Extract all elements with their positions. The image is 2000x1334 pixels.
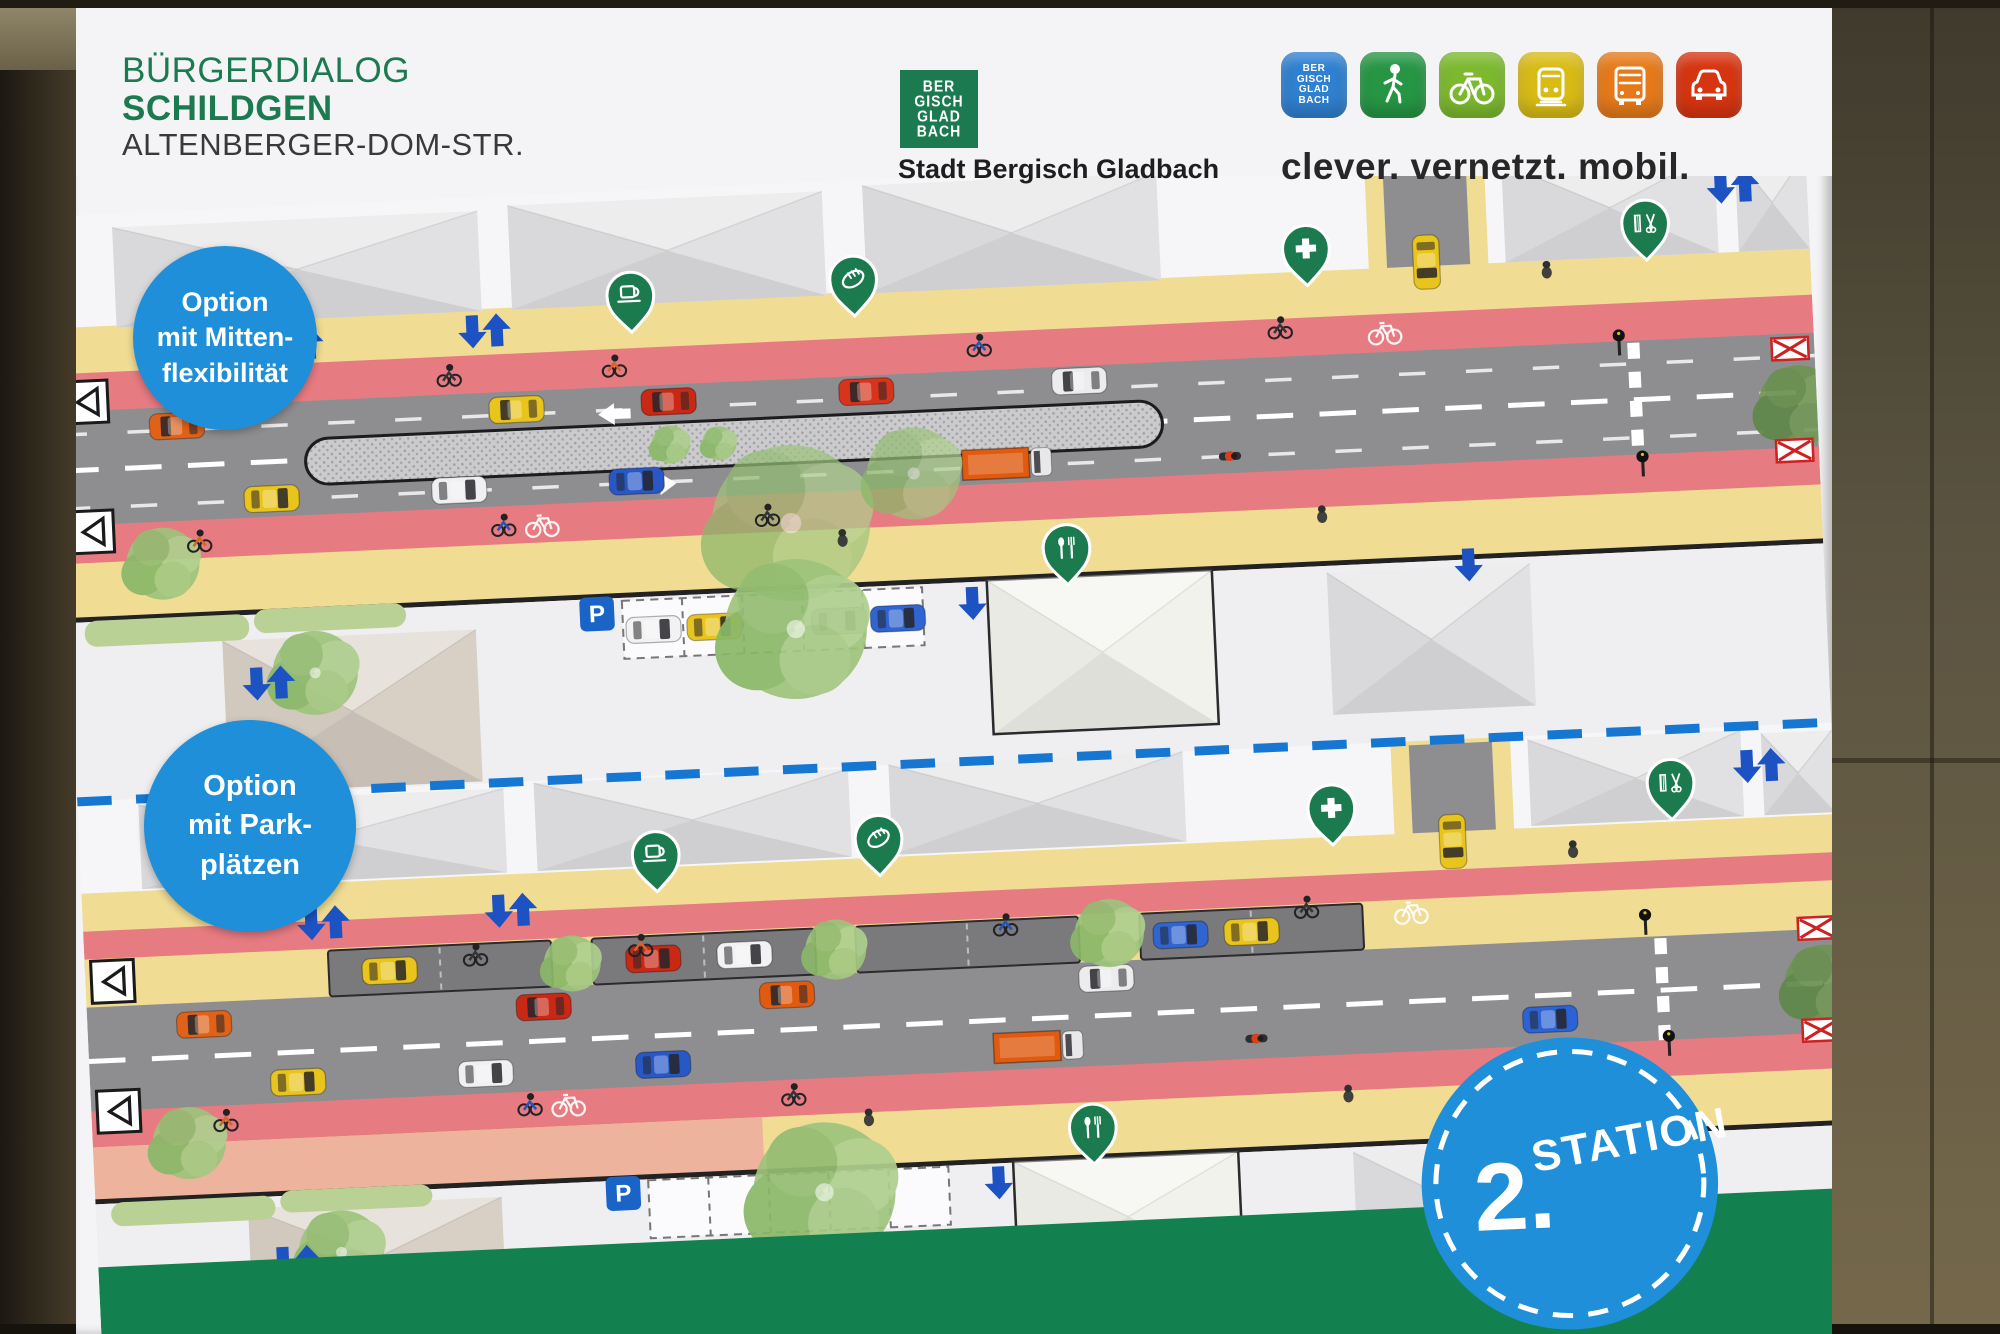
wall-seam-horizontal (1832, 758, 2000, 763)
option-badge-mittenflexibilitaet: Option mit Mitten- flexibilität (133, 246, 317, 430)
vehicle-car (1522, 1005, 1578, 1033)
city-logo: BER GISCH GLAD BACH (900, 70, 978, 148)
option-badge-line: Option (182, 285, 269, 320)
city-logo-line: BACH (1299, 96, 1330, 107)
lane-end-marker (76, 510, 115, 554)
option-badge-line: flexibilität (162, 356, 288, 391)
bicycle-icon (1448, 61, 1496, 109)
vehicle-car (635, 1050, 691, 1078)
vehicle-car (717, 940, 773, 968)
pedestrian-icon (1369, 61, 1417, 109)
tram-tile (1518, 52, 1584, 118)
wall-seam-vertical (1930, 0, 1934, 1334)
roadside-parking-bay (855, 917, 1080, 973)
pedestrian-tile (1360, 52, 1426, 118)
option-badge-line: mit Park- (188, 806, 312, 845)
vehicle-truck (993, 1029, 1084, 1063)
building (1527, 730, 1744, 826)
vehicle-truck (961, 446, 1052, 480)
vehicle-car (641, 387, 697, 415)
parking-icon-letter: P (588, 601, 605, 629)
vehicle-car (1153, 921, 1209, 949)
wall-panel-right (1832, 0, 2000, 1334)
vehicle-car (1438, 814, 1467, 869)
mobility-icon-row: BERGISCHGLADBACH (1281, 52, 1742, 118)
title-line-2: SCHILDGEN (122, 90, 524, 128)
vehicle-car (838, 377, 894, 405)
vehicle-car (1078, 964, 1134, 992)
bus-tile (1597, 52, 1663, 118)
vehicle-car (362, 957, 418, 985)
vehicle-car (759, 981, 815, 1009)
tram-icon (1527, 61, 1575, 109)
vehicle-car (626, 615, 682, 643)
street-plans-wrap: P P 2. STATION (76, 137, 1832, 1334)
wall-corner-patch (0, 0, 76, 70)
information-poster: P P 2. STATION BÜRGERDIALOG SCHILDGEN AL… (76, 8, 1832, 1334)
building (862, 172, 1161, 293)
title-line-1: BÜRGERDIALOG (122, 52, 524, 90)
mobility-slogan: clever. vernetzt. mobil. (1281, 146, 1690, 188)
street-plans-canvas: P P 2. STATION (76, 137, 1832, 1334)
vehicle-car (516, 993, 572, 1021)
vehicle-car (431, 476, 487, 504)
car-icon (1685, 61, 1733, 109)
wall-edge-top (0, 0, 2000, 8)
vehicle-car (625, 945, 681, 973)
city-logo-line: BACH (917, 123, 961, 140)
city-logo-line: GLAD (1299, 85, 1329, 96)
bicycle-tile (1439, 52, 1505, 118)
wall-panel-left (0, 0, 76, 1334)
vehicle-car (458, 1059, 514, 1087)
title-line-3: ALTENBERGER-DOM-STR. (122, 128, 524, 161)
building (1327, 564, 1536, 715)
option-badge-parkplaetzen: Option mit Park- plätzen (144, 720, 356, 932)
vehicle-car (870, 604, 926, 632)
bus-icon (1606, 61, 1654, 109)
building (987, 570, 1219, 734)
poster-title: BÜRGERDIALOG SCHILDGEN ALTENBERGER-DOM-S… (122, 52, 524, 161)
barrier-sign (1802, 1018, 1832, 1042)
vehicle-car (1412, 234, 1441, 289)
barrier-sign (1776, 439, 1814, 463)
barrier-sign (1798, 916, 1832, 940)
building (534, 769, 852, 871)
barrier-sign (1771, 337, 1809, 361)
building (507, 191, 826, 309)
vehicle-car (1051, 367, 1107, 395)
vehicle-car (609, 467, 665, 495)
option-badge-line: plätzen (200, 846, 300, 885)
vehicle-car (270, 1068, 326, 1096)
vehicle-car (244, 484, 300, 512)
vehicle-car (489, 395, 545, 423)
option-badge-line: Option (203, 767, 296, 806)
city-logo-mini: BERGISCHGLADBACH (1297, 64, 1331, 106)
lane-end-marker (76, 380, 109, 424)
parking-icon-letter: P (615, 1180, 632, 1208)
city-name: Stadt Bergisch Gladbach (898, 154, 1219, 185)
vehicle-car (176, 1010, 232, 1038)
poster-header: BÜRGERDIALOG SCHILDGEN ALTENBERGER-DOM-S… (76, 8, 1832, 176)
option-badge-line: mit Mitten- (157, 320, 293, 355)
lane-end-marker (91, 959, 135, 1003)
vehicle-car (1224, 917, 1280, 945)
car-tile (1676, 52, 1742, 118)
city-logo-tile: BERGISCHGLADBACH (1281, 52, 1347, 118)
lane-end-marker (96, 1089, 140, 1133)
city-logo-line: BER (1303, 64, 1326, 75)
